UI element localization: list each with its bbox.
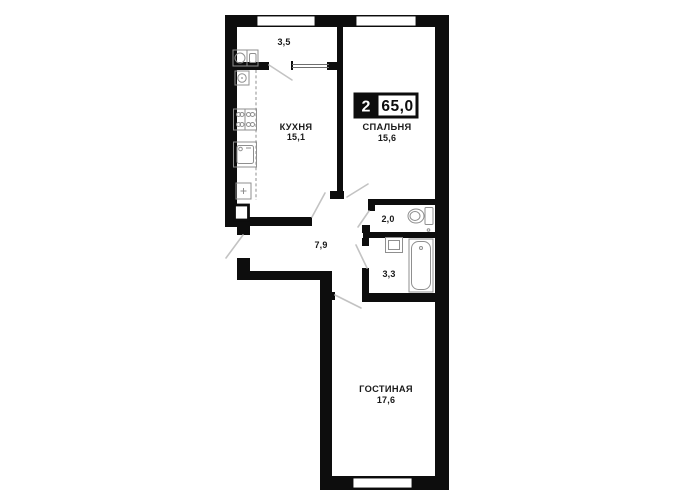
wall-partition-foot: [330, 191, 344, 199]
kitchen-name-label: КУХНЯ: [280, 122, 313, 132]
wall-bath-left-lower: [362, 268, 369, 293]
wall-balcony-divider-tab: [327, 62, 337, 70]
kitchen-area-label: 15,1: [287, 132, 305, 142]
wall-entrance-jamb: [237, 224, 250, 235]
vent-shaft: [235, 205, 249, 220]
wall-hall-south: [237, 271, 330, 280]
living-room-name-label: ГОСТИНАЯ: [359, 384, 413, 394]
floor-plan-canvas: 2 65,0 3,5 КУХНЯ 15,1 СПАЛЬНЯ 15,6 2,0 3…: [0, 0, 674, 500]
area-badge: 2 65,0: [354, 93, 418, 119]
balcony-door: [269, 65, 292, 80]
toilet-icon: [408, 208, 433, 232]
balcony-area-label: 3,5: [277, 37, 290, 47]
washbasin-icon: [386, 238, 403, 253]
walls: [225, 15, 449, 490]
wall-wc-left: [362, 225, 370, 233]
wall-wc-north: [368, 199, 435, 205]
floor-plan: 2 65,0 3,5 КУХНЯ 15,1 СПАЛЬНЯ 15,6 2,0 3…: [0, 0, 674, 500]
bathroom-door: [356, 245, 367, 268]
wall-living-door-jamb: [330, 292, 335, 300]
bedroom-window: [356, 16, 416, 26]
wall-kitchen-bedroom: [337, 15, 343, 195]
bathroom-area-label: 3,3: [382, 269, 395, 279]
balcony-window: [257, 16, 315, 26]
cooktop-icon: [235, 71, 249, 85]
entrance-door: [226, 235, 243, 258]
badge-total-area: 65,0: [381, 98, 413, 115]
badge-rooms-count: 2: [362, 99, 371, 116]
wall-right: [435, 15, 449, 490]
living-room-window: [353, 478, 412, 488]
hallway-area-label: 7,9: [314, 240, 327, 250]
wall-wc-door-jamb: [368, 199, 375, 211]
wc-area-label: 2,0: [381, 214, 394, 224]
balcony-window-jamb: [291, 61, 293, 70]
wc-door: [358, 211, 369, 227]
bedroom-area-label: 15,6: [378, 133, 396, 143]
wall-left: [225, 15, 237, 227]
living-room-area-label: 17,6: [377, 395, 395, 405]
wall-bath-south: [362, 293, 435, 302]
service-box-icon: [236, 183, 251, 199]
bedroom-name-label: СПАЛЬНЯ: [363, 122, 412, 132]
bedroom-door: [347, 184, 368, 197]
wall-bath-left-upper: [362, 238, 369, 246]
living-room-door: [335, 295, 361, 308]
bathtub-icon: [409, 239, 433, 292]
wall-living-left: [320, 271, 332, 490]
kitchen-door: [312, 193, 325, 217]
